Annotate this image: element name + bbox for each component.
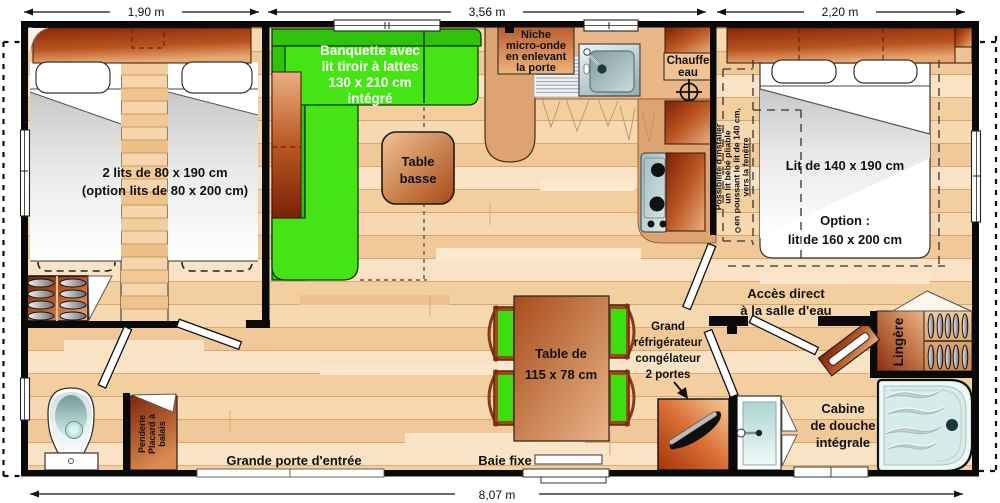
svg-text:la porte: la porte bbox=[516, 62, 556, 74]
svg-text:Cabine: Cabine bbox=[821, 401, 864, 416]
svg-text:Baie fixe: Baie fixe bbox=[478, 453, 531, 468]
svg-text:Grand: Grand bbox=[651, 321, 685, 333]
svg-text:lit tiroir à lattes: lit tiroir à lattes bbox=[322, 59, 419, 74]
svg-text:Table: Table bbox=[402, 154, 435, 169]
svg-text:balais: balais bbox=[157, 421, 167, 447]
svg-text:de douche: de douche bbox=[810, 418, 875, 433]
svg-text:Accès direct: Accès direct bbox=[747, 286, 825, 301]
svg-text:8,07 m: 8,07 m bbox=[479, 488, 516, 502]
svg-text:115 x 78 cm: 115 x 78 cm bbox=[525, 367, 597, 382]
svg-text:congélateur: congélateur bbox=[635, 353, 701, 365]
svg-text:Banquette avec: Banquette avec bbox=[320, 43, 420, 58]
svg-text:2,20 m: 2,20 m bbox=[822, 5, 859, 19]
svg-text:Grande porte d'entrée: Grande porte d'entrée bbox=[226, 453, 361, 468]
svg-text:eau: eau bbox=[678, 67, 698, 79]
svg-text:basse: basse bbox=[400, 171, 437, 186]
svg-text:Lit de 140 x 190 cm: Lit de 140 x 190 cm bbox=[786, 158, 905, 173]
svg-text:2 portes: 2 portes bbox=[646, 369, 691, 381]
svg-text:réfrigérateur: réfrigérateur bbox=[634, 337, 703, 349]
svg-text:intégré: intégré bbox=[347, 91, 393, 106]
svg-text:Placard à: Placard à bbox=[147, 413, 157, 454]
svg-text:1,90 m: 1,90 m bbox=[128, 5, 165, 19]
svg-text:Option :: Option : bbox=[820, 213, 870, 228]
svg-text:lit de 160 x 200 cm: lit de 160 x 200 cm bbox=[788, 232, 902, 247]
svg-text:Table de: Table de bbox=[535, 346, 587, 361]
svg-text:130 x 210 cm: 130 x 210 cm bbox=[328, 75, 411, 90]
svg-text:Lingère: Lingère bbox=[891, 317, 906, 366]
svg-text:intégrale: intégrale bbox=[816, 435, 870, 450]
svg-text:vers la fenêtre: vers la fenêtre bbox=[741, 137, 751, 196]
svg-text:Chauffe: Chauffe bbox=[667, 55, 710, 67]
svg-text:Penderie: Penderie bbox=[137, 415, 147, 453]
svg-text:(option lits de 80 x 200 cm): (option lits de 80 x 200 cm) bbox=[82, 183, 248, 198]
svg-text:2 lits de 80 x 190 cm: 2 lits de 80 x 190 cm bbox=[102, 165, 227, 180]
svg-text:3,56 m: 3,56 m bbox=[469, 5, 506, 19]
